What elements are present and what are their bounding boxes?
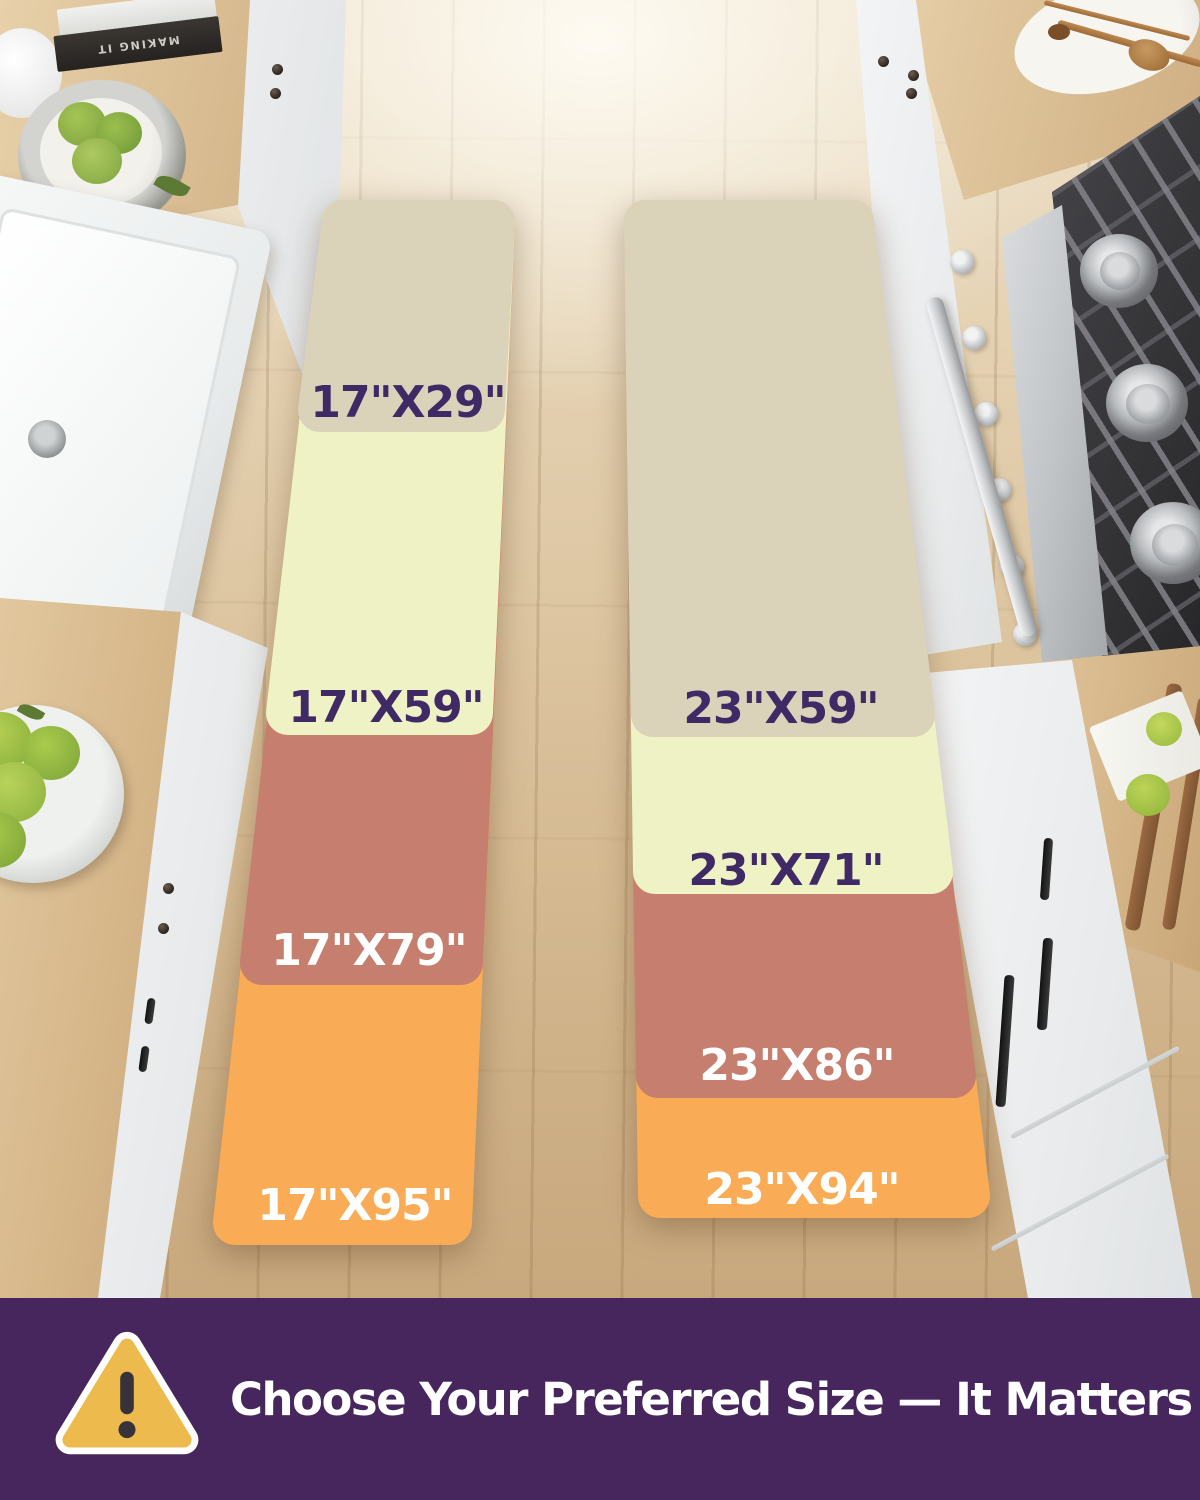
product-size-infographic: MAKING IT bbox=[0, 0, 1200, 1500]
size-label-23x59: 23"X59" bbox=[683, 683, 878, 734]
size-label-17x29: 17"X29" bbox=[310, 377, 505, 428]
warning-triangle-icon bbox=[52, 1331, 202, 1467]
right-runner: 23"X59" 23"X71" 23"X86" 23"X94" bbox=[646, 222, 968, 1215]
left-runner: 17"X29" 17"X59" 17"X79" 17"X95" bbox=[235, 222, 506, 1231]
notice-banner: Choose Your Preferred Size — It Matters bbox=[0, 1298, 1200, 1500]
size-label-17x59: 17"X59" bbox=[288, 682, 483, 733]
size-label-23x71: 23"X71" bbox=[688, 845, 883, 896]
size-label-23x86: 23"X86" bbox=[699, 1040, 894, 1091]
banner-text: Choose Your Preferred Size — It Matters bbox=[230, 1373, 1192, 1426]
size-label-17x95: 17"X95" bbox=[257, 1180, 452, 1231]
exclamation-dot bbox=[119, 1421, 136, 1438]
size-label-23x94: 23"X94" bbox=[704, 1164, 899, 1215]
mat-23x59 bbox=[646, 222, 913, 715]
size-label-17x79: 17"X79" bbox=[271, 925, 466, 976]
size-comparison-overlay: 17"X29" 17"X59" 17"X79" 17"X95" 23"X59" … bbox=[0, 0, 1200, 1500]
exclamation-bar bbox=[120, 1372, 134, 1415]
